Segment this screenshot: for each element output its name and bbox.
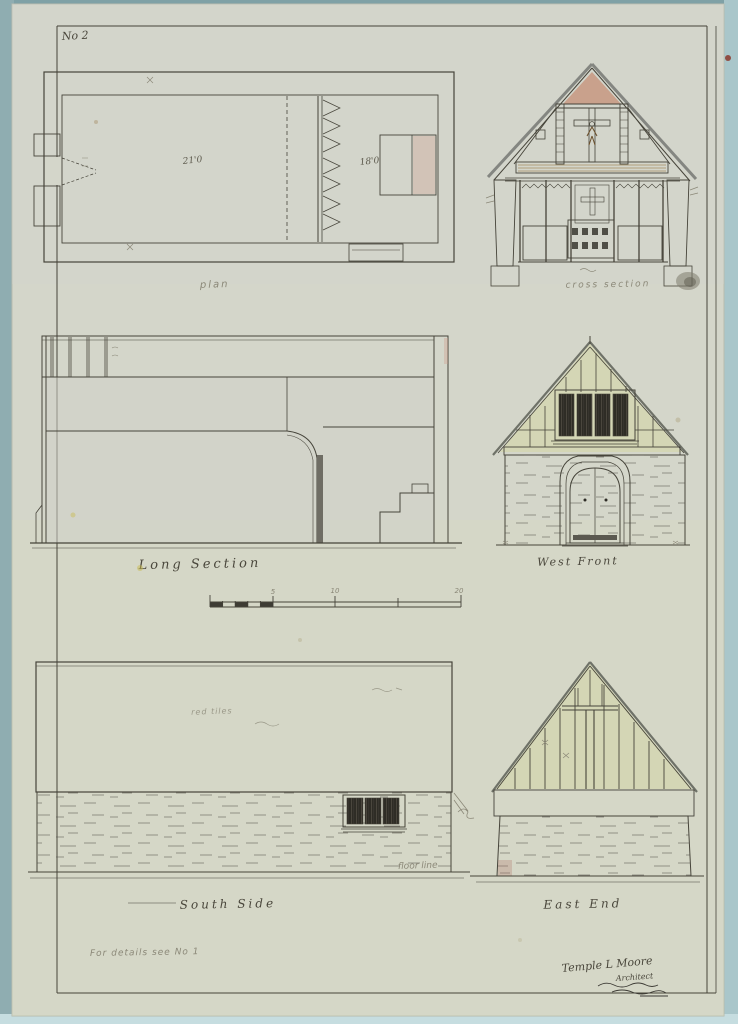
- ls-door-jamb: [317, 455, 323, 543]
- scale-subdivisions: [210, 603, 273, 607]
- footnote: For details see No 1: [90, 947, 200, 959]
- wf-threshold: [573, 535, 617, 540]
- wf-door-handle-right: [605, 499, 608, 502]
- long-section-caption: Long Section: [137, 556, 261, 573]
- roof-material-note: red tiles: [191, 706, 233, 716]
- scale-label-20: 20: [455, 587, 464, 595]
- cross-section-caption: cross section: [565, 279, 650, 290]
- wf-door-handle-left: [584, 499, 587, 502]
- scale-label-5: 5: [271, 588, 276, 596]
- ee-wall-tint: [498, 860, 512, 876]
- plan-altar-tint: [413, 136, 435, 194]
- plan-dim-chancel: 18'0: [359, 156, 380, 168]
- plan-caption: plan: [199, 279, 230, 291]
- scanned-architectural-sheet: No 2 21'0 18'0 plan: [0, 0, 738, 1024]
- ls-interior: [46, 377, 434, 543]
- south-side-caption: South Side: [180, 896, 277, 912]
- drawing-sheet-svg: No 2 21'0 18'0 plan: [0, 0, 738, 1024]
- floor-line-label: floor line: [398, 861, 438, 872]
- sheet-number: No 2: [60, 29, 88, 43]
- ee-stone-texture: [497, 816, 691, 876]
- plan-door-opening: [45, 157, 61, 185]
- mat-speck: [725, 55, 731, 61]
- east-end-caption: East End: [542, 896, 622, 911]
- scale-label-10: 10: [331, 587, 340, 595]
- west-front-caption: West Front: [537, 554, 619, 568]
- ss-window-lights: [347, 798, 399, 824]
- ls-wall-tint: [444, 338, 448, 364]
